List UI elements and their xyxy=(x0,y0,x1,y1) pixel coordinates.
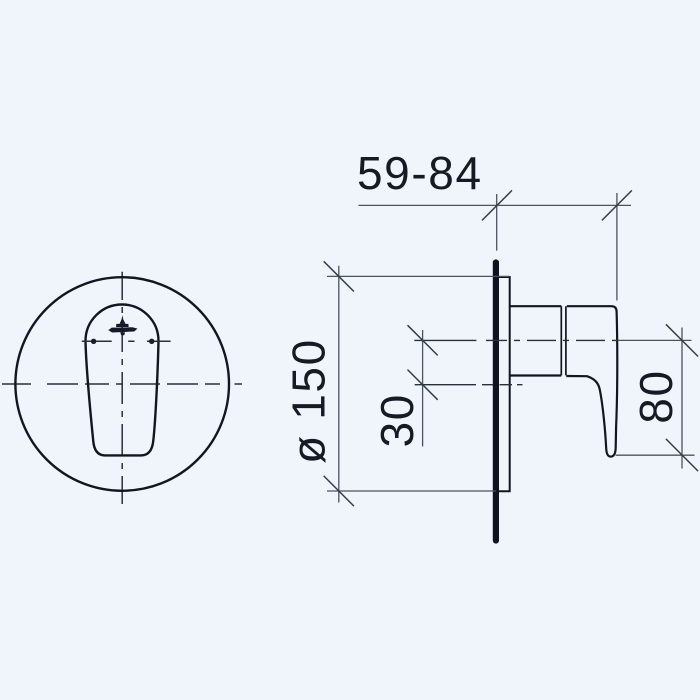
svg-text:30: 30 xyxy=(371,393,423,447)
svg-text:59-84: 59-84 xyxy=(357,147,483,199)
svg-text:ø 150: ø 150 xyxy=(283,338,335,464)
svg-text:80: 80 xyxy=(630,369,682,423)
